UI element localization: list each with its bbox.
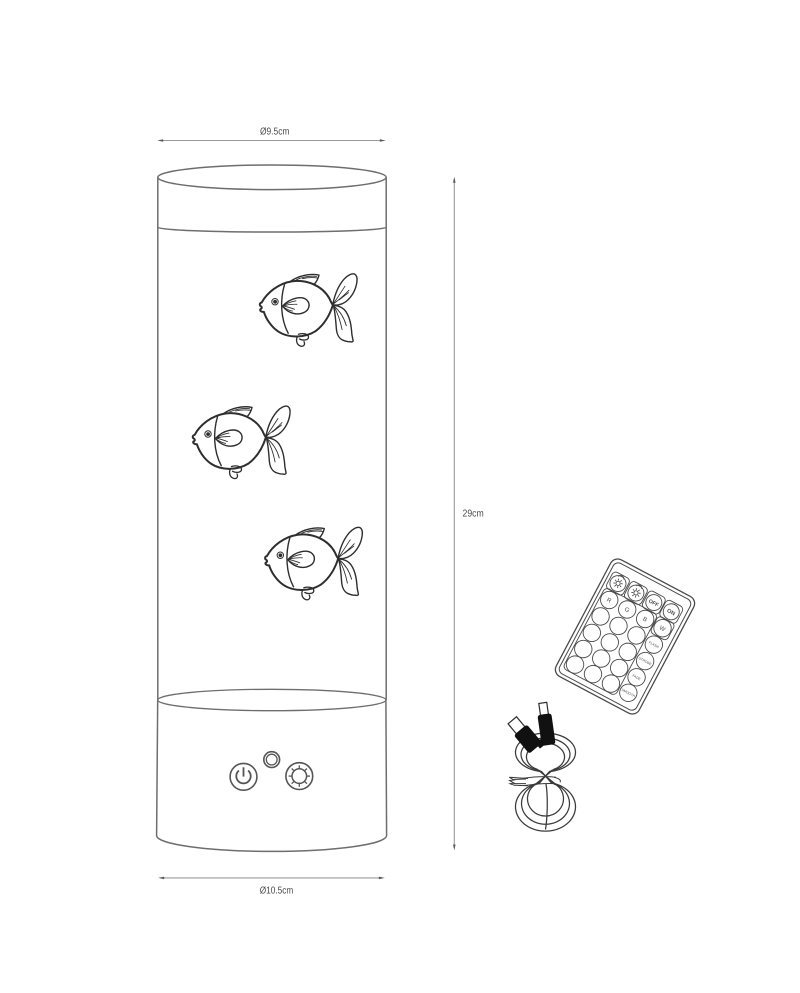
svg-text:29cm: 29cm (463, 508, 484, 519)
svg-text:Ø10.5cm: Ø10.5cm (260, 886, 294, 897)
svg-text:Ø9.5cm: Ø9.5cm (260, 126, 290, 137)
